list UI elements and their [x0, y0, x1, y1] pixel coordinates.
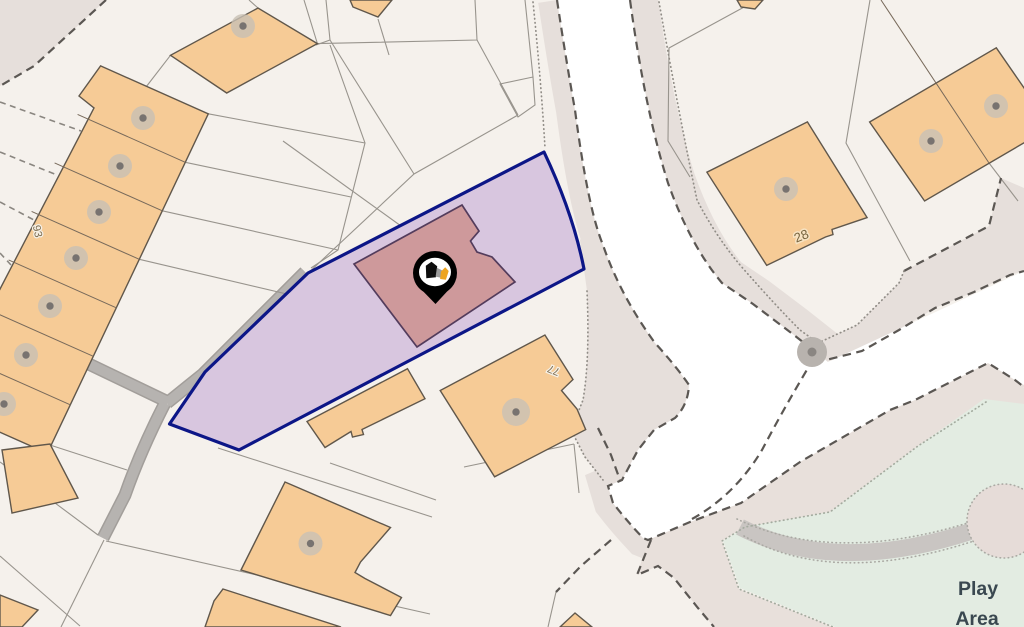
svg-text:Play: Play	[958, 578, 998, 600]
svg-text:Area: Area	[955, 608, 999, 627]
svg-text:93: 93	[30, 224, 44, 238]
